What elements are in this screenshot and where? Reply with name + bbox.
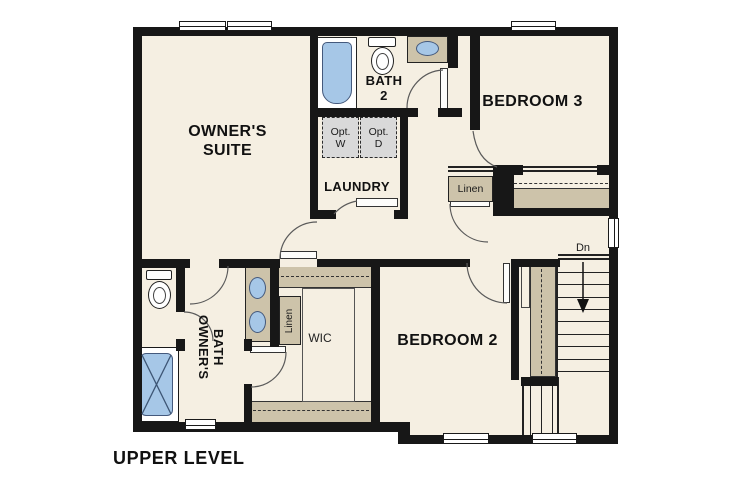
bedroom2-door [503,263,510,303]
wall-exterior-bottom-right [405,435,618,444]
room-label-owners-suite: OWNER'S SUITE [140,122,315,160]
linen-header-line [448,166,498,168]
wall-toilet-room [176,266,185,312]
washer-label-2: W [336,138,346,150]
window-suite-1 [179,21,226,31]
stair-tread [558,284,609,285]
bath2-sink [416,41,439,56]
shower-pan [140,353,173,416]
stairs-down-label: Dn [566,242,600,254]
linen-header-line [448,170,498,172]
wic-rod-north [281,276,369,277]
dryer-label-2: D [375,138,383,150]
owners-suite-door [280,251,317,259]
linen-hall-label: Linen [458,183,484,195]
window-bedroom3 [511,21,556,31]
window-stair-landing [608,218,619,248]
floor-area-bedroom2 [402,420,614,436]
owners-sink-1 [249,277,266,299]
window-owners-bath [185,419,216,430]
wall-bedroom3-west [470,27,480,130]
optional-dryer: Opt. D [360,117,397,158]
stair-lower-edge [522,383,524,435]
optional-washer: Opt. W [322,117,359,158]
owners-bath-line1: OWNER'S [196,304,211,390]
stair-lower-line [530,383,531,435]
window-suite-2 [227,21,272,31]
wall-bedroom3-closet [493,165,523,175]
closet-stair-divider [556,266,558,377]
linen-closet-hall: Linen [448,176,493,202]
linen-owners-label: Linen [284,308,296,332]
closet-bypass-line [523,166,597,168]
room-label-owners-bath: OWNER'S BATH [196,304,230,390]
wall-bedroom2-closet-south [521,377,558,386]
owners-suite-line2: SUITE [140,141,315,160]
wall-wic-west [244,384,252,422]
closet-bypass-line [523,170,597,172]
owners-sink-2 [249,311,266,333]
room-label-bath2: BATH 2 [344,73,424,103]
stair-edge [558,254,609,256]
stair-tread [558,334,609,335]
laundry-door [356,198,398,207]
bath2-toilet-seat [376,53,389,70]
bath2-line1: BATH [344,73,424,88]
linen-hall-door [450,201,490,207]
owners-bath-line2: BATH [211,304,226,390]
floor-plan: Opt. W Opt. D Linen Linen [0,0,750,500]
stair-tread [558,272,609,273]
room-label-bedroom2: BEDROOM 2 [360,331,535,350]
stair-tread [558,346,609,347]
wic-shelf-south [251,401,371,422]
bedroom2-closet-door [521,266,530,308]
wall-bedroom2-closet-west [511,259,519,380]
stair-tread [558,309,609,310]
room-label-laundry: LAUNDRY [300,179,414,194]
room-label-bedroom3: BEDROOM 3 [445,92,620,111]
wall-toilet-room-stub [176,339,185,351]
wall-bedroom3-closet [597,165,612,175]
washer-label-1: Opt. [331,126,351,138]
wall-exterior-bottom-left [133,422,405,432]
stair-tread [558,297,609,298]
window-bedroom2-1 [443,433,489,444]
owners-suite-line1: OWNER'S [140,122,315,141]
stair-tread [558,359,609,360]
bedroom2-closet-rod [541,269,542,374]
stair-tread [558,371,609,372]
stair-lower-line [552,383,553,435]
wall-wic-stub [244,339,252,351]
stair-tread [558,321,609,322]
bedroom2-closet-shelf [530,266,556,377]
window-bedroom2-2 [532,433,577,444]
wall-laundry-south [310,210,336,219]
bath2-line2: 2 [344,88,424,103]
owners-toilet-seat [153,287,166,304]
wall-laundry-east [400,108,408,218]
bedroom3-closet-rod [514,183,608,184]
stair-lower-line [541,383,542,435]
wic-door [250,346,286,353]
wall-closet-south [510,208,610,216]
stair-edge [558,258,609,260]
plan-title: UPPER LEVEL [113,448,245,469]
dryer-label-1: Opt. [369,126,389,138]
wall-laundry-south [394,210,408,219]
room-label-wic: WIC [290,332,350,344]
wall-hall-south [317,259,470,267]
wall-bath2-east [448,27,458,68]
wall-exterior-left [133,27,142,432]
bedroom3-closet-shelf [512,188,609,208]
wic-rod-south [253,410,369,411]
wic-shelf-north [279,267,371,288]
wall-vanity-east [270,259,279,347]
bath2-toilet-tank [368,37,396,47]
owners-toilet-tank [146,270,172,280]
wic-shelf-edge [302,288,355,402]
